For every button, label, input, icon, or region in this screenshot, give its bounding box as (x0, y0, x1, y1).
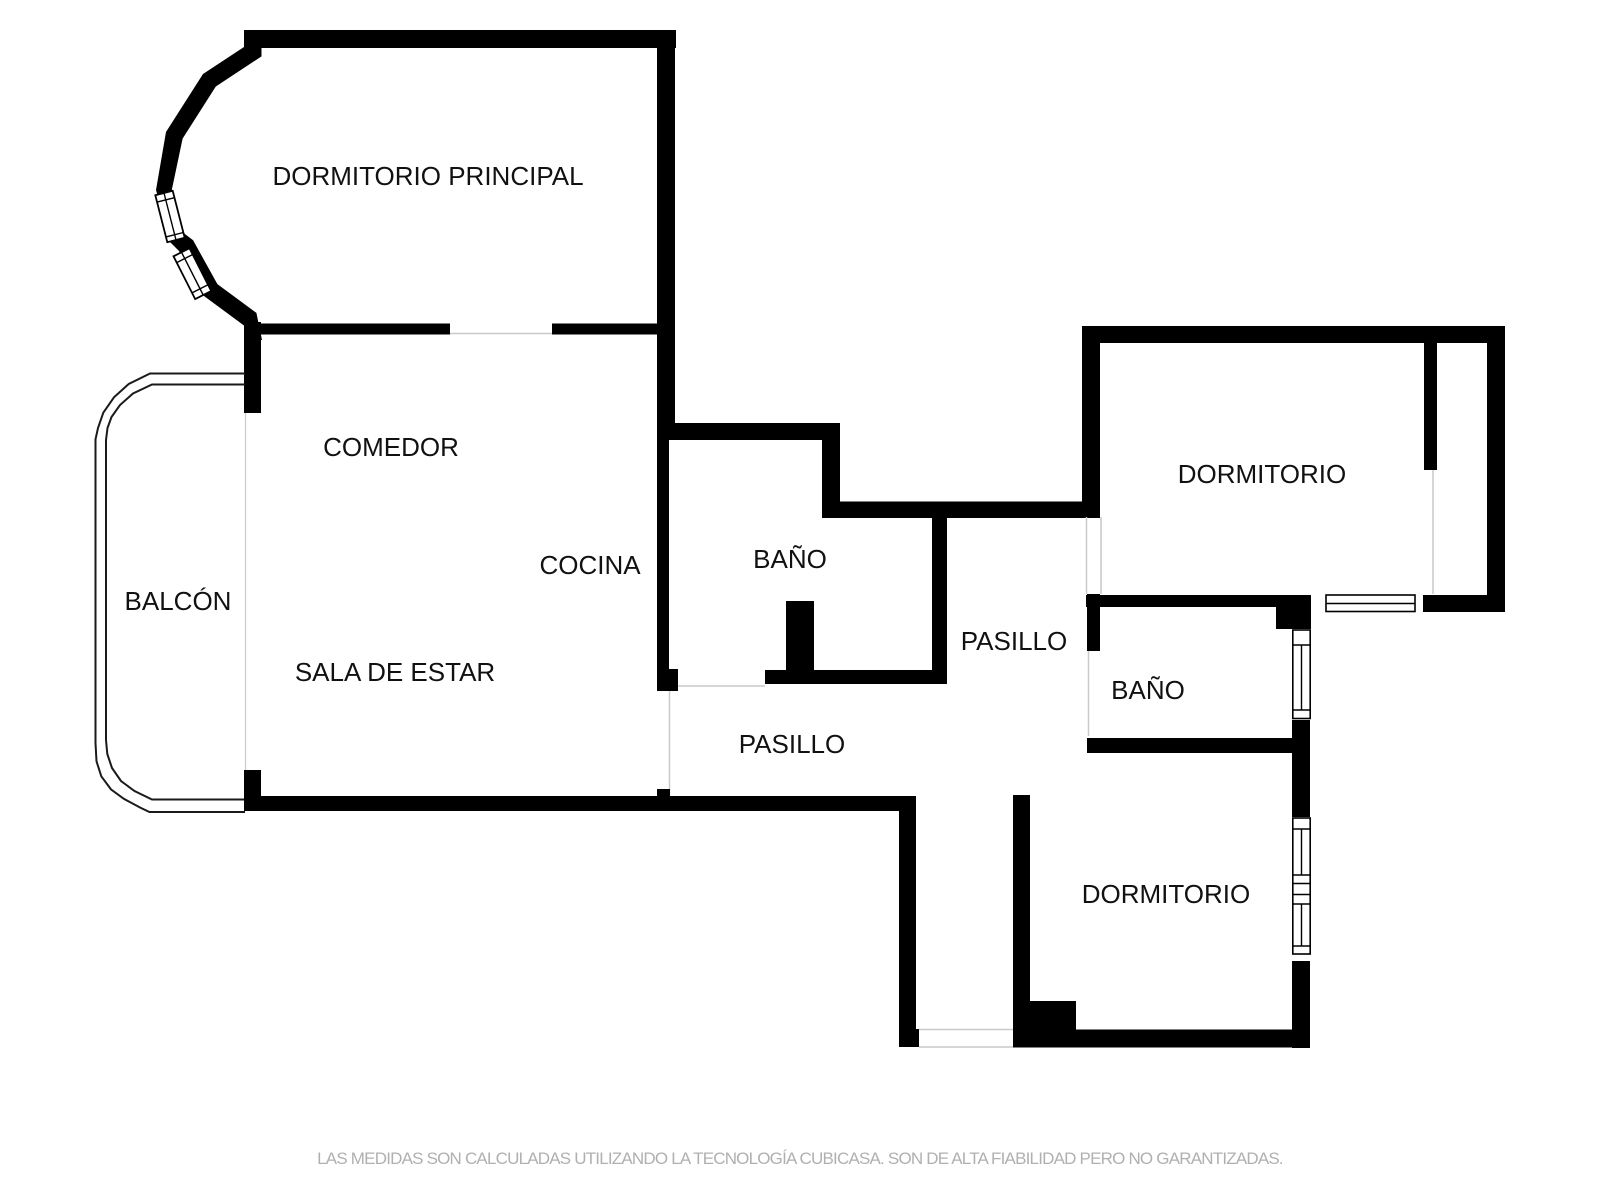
svg-text:PASILLO: PASILLO (961, 626, 1067, 656)
svg-text:DORMITORIO: DORMITORIO (1178, 459, 1347, 489)
svg-text:PASILLO: PASILLO (739, 729, 845, 759)
svg-text:COMEDOR: COMEDOR (323, 432, 459, 462)
svg-text:COCINA: COCINA (539, 550, 641, 580)
svg-text:BAÑO: BAÑO (1111, 675, 1185, 705)
svg-text:LAS MEDIDAS SON CALCULADAS UTI: LAS MEDIDAS SON CALCULADAS UTILIZANDO LA… (317, 1149, 1283, 1168)
svg-text:BALCÓN: BALCÓN (125, 586, 232, 616)
svg-text:DORMITORIO: DORMITORIO (1082, 879, 1251, 909)
svg-text:DORMITORIO PRINCIPAL: DORMITORIO PRINCIPAL (272, 161, 583, 191)
svg-text:BAÑO: BAÑO (753, 544, 827, 574)
svg-text:SALA DE ESTAR: SALA DE ESTAR (295, 657, 495, 687)
